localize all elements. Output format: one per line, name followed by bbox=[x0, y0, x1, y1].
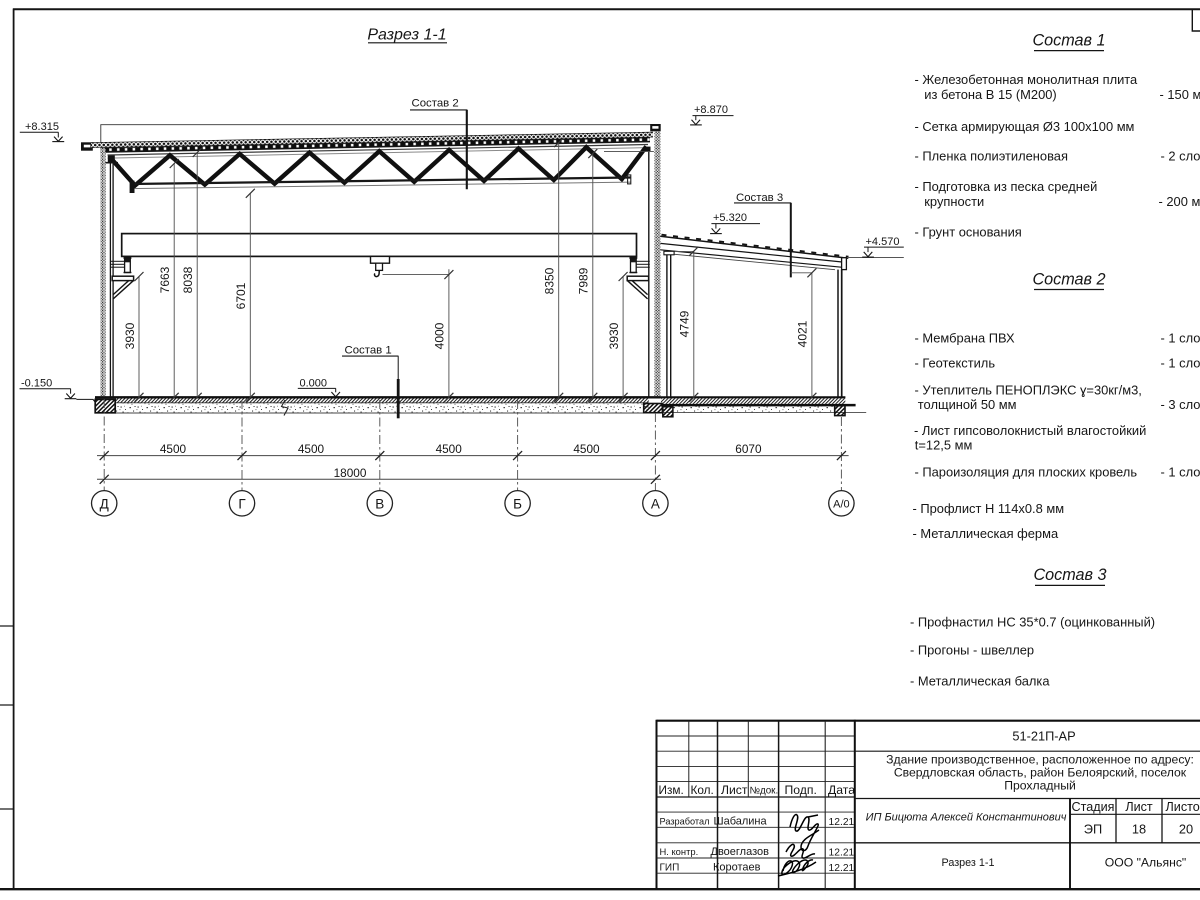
svg-text:Разрез 1-1: Разрез 1-1 bbox=[367, 27, 446, 44]
svg-text:- Профнастил НС 35*0.7 (оцинко: - Профнастил НС 35*0.7 (оцинкованный) bbox=[910, 614, 1155, 629]
svg-text:Листов: Листов bbox=[1166, 800, 1200, 814]
svg-text:ИП Бицюта Алексей Константинов: ИП Бицюта Алексей Константинович bbox=[866, 812, 1067, 824]
svg-text:Кол.: Кол. bbox=[691, 783, 714, 797]
svg-text:А/0: А/0 bbox=[833, 499, 850, 511]
svg-text:ЭП: ЭП bbox=[1084, 821, 1102, 836]
svg-text:3930: 3930 bbox=[123, 322, 137, 349]
svg-text:12.21: 12.21 bbox=[829, 817, 855, 828]
svg-text:8350: 8350 bbox=[543, 267, 557, 294]
svg-text:- 1 слой: - 1 слой bbox=[1161, 465, 1200, 480]
svg-text:4000: 4000 bbox=[433, 322, 447, 349]
svg-text:Лист: Лист bbox=[1125, 800, 1153, 814]
svg-text:А: А bbox=[651, 496, 660, 511]
svg-text:Изм.: Изм. bbox=[659, 783, 684, 797]
svg-text:Прохладный: Прохладный bbox=[1004, 778, 1076, 792]
svg-text:Дата: Дата bbox=[828, 783, 855, 797]
svg-text:Состав 3: Состав 3 bbox=[736, 192, 783, 204]
svg-text:- Сетка армирующая Ø3 100х100: - Сетка армирующая Ø3 100х100 мм bbox=[915, 119, 1135, 134]
svg-text:- 150 мм: - 150 мм bbox=[1160, 87, 1200, 102]
svg-text:t=12,5 мм: t=12,5 мм bbox=[915, 437, 973, 452]
svg-text:18000: 18000 bbox=[334, 466, 367, 480]
svg-text:4500: 4500 bbox=[160, 442, 187, 456]
svg-text:6070: 6070 bbox=[735, 442, 762, 456]
svg-text:- Утеплитель ПЕНОПЛЭКС ɣ=30кг/: - Утеплитель ПЕНОПЛЭКС ɣ=30кг/м3, bbox=[915, 382, 1142, 397]
svg-text:3930: 3930 bbox=[607, 322, 621, 349]
svg-text:- Пароизоляция для плоских кро: - Пароизоляция для плоских кровель bbox=[915, 465, 1138, 480]
svg-text:+8.315: +8.315 bbox=[25, 121, 59, 133]
svg-text:Состав 1: Состав 1 bbox=[345, 345, 392, 357]
svg-text:- Грунт основания: - Грунт основания bbox=[915, 224, 1022, 239]
svg-text:Разрез 1-1: Разрез 1-1 bbox=[941, 857, 994, 869]
svg-text:Свердловская область, район Бе: Свердловская область, район Белоярский, … bbox=[894, 765, 1187, 779]
svg-text:№док.: №док. bbox=[750, 786, 779, 797]
svg-text:- Металлическая ферма: - Металлическая ферма bbox=[913, 526, 1059, 541]
svg-text:Шабалина: Шабалина bbox=[714, 816, 768, 828]
svg-text:- Металлическая балка: - Металлическая балка bbox=[910, 673, 1050, 688]
svg-text:0.000: 0.000 bbox=[300, 378, 328, 390]
svg-text:-0.150: -0.150 bbox=[21, 377, 52, 389]
svg-text:4021: 4021 bbox=[796, 320, 810, 347]
svg-text:Г: Г bbox=[238, 496, 246, 511]
svg-text:18: 18 bbox=[1132, 821, 1146, 836]
svg-text:6701: 6701 bbox=[234, 282, 248, 309]
svg-text:ООО "Альянс": ООО "Альянс" bbox=[1105, 856, 1187, 870]
svg-text:- Прогоны - швеллер: - Прогоны - швеллер bbox=[910, 642, 1034, 657]
svg-text:- Железобетонная монолитная п: - Железобетонная монолитная плита bbox=[915, 72, 1139, 87]
svg-text:+4.570: +4.570 bbox=[866, 236, 900, 248]
svg-text:- Геотекстиль: - Геотекстиль bbox=[915, 356, 996, 371]
svg-text:Стадия: Стадия bbox=[1072, 800, 1115, 814]
svg-text:Коротаев: Коротаев bbox=[713, 861, 761, 873]
svg-text:12.21: 12.21 bbox=[829, 848, 855, 859]
svg-text:Б: Б bbox=[513, 496, 522, 511]
svg-text:- 3 слоя: - 3 слоя bbox=[1161, 397, 1200, 412]
svg-text:7989: 7989 bbox=[577, 267, 591, 294]
svg-text:Состав 2: Состав 2 bbox=[412, 98, 459, 110]
svg-text:- 200 мм: - 200 мм bbox=[1159, 194, 1200, 209]
svg-text:- 1 слой: - 1 слой bbox=[1161, 330, 1200, 345]
svg-text:Состав 1: Состав 1 bbox=[1032, 32, 1105, 50]
svg-text:4749: 4749 bbox=[678, 310, 692, 337]
svg-text:4500: 4500 bbox=[573, 442, 600, 456]
svg-text:толщиной 50 мм: толщиной 50 мм bbox=[918, 397, 1017, 412]
svg-text:- Пленка полиэтиленовая: - Пленка полиэтиленовая bbox=[915, 149, 1068, 164]
svg-text:из бетона В 15 (М200): из бетона В 15 (М200) bbox=[924, 87, 1056, 102]
svg-text:Состав 2: Состав 2 bbox=[1032, 270, 1105, 288]
svg-text:- Мембрана ПВХ: - Мембрана ПВХ bbox=[915, 330, 1016, 345]
svg-text:- Подготовка из песка средней: - Подготовка из песка средней bbox=[915, 179, 1098, 194]
svg-text:+8.870: +8.870 bbox=[694, 104, 728, 116]
svg-text:- Лист гипсоволокнистый влагос: - Лист гипсоволокнистый влагостойкий bbox=[914, 423, 1146, 438]
svg-text:Лист: Лист bbox=[721, 783, 748, 797]
svg-text:ГИП: ГИП bbox=[660, 863, 680, 874]
svg-text:- 1 слой: - 1 слой bbox=[1161, 356, 1200, 371]
svg-text:Подп.: Подп. bbox=[785, 783, 817, 797]
svg-text:8038: 8038 bbox=[181, 266, 195, 293]
svg-text:+5.320: +5.320 bbox=[713, 212, 747, 224]
svg-text:4500: 4500 bbox=[298, 442, 325, 456]
svg-text:51-21П-АР: 51-21П-АР bbox=[1012, 729, 1075, 744]
svg-text:Разработал: Разработал bbox=[660, 816, 710, 826]
svg-text:4500: 4500 bbox=[436, 442, 463, 456]
svg-text:- 2 слоя: - 2 слоя bbox=[1161, 149, 1200, 164]
svg-text:В: В bbox=[375, 496, 384, 511]
svg-text:Н. контр.: Н. контр. bbox=[660, 846, 699, 857]
svg-text:Д: Д bbox=[100, 496, 109, 511]
svg-text:крупности: крупности bbox=[924, 194, 984, 209]
svg-text:Состав 3: Состав 3 bbox=[1033, 566, 1106, 584]
svg-text:20: 20 bbox=[1179, 821, 1193, 836]
svg-text:12.21: 12.21 bbox=[829, 863, 855, 874]
svg-text:Двоеглазов: Двоеглазов bbox=[711, 846, 770, 858]
svg-text:7663: 7663 bbox=[158, 266, 172, 293]
svg-text:- Профлист Н 114х0.8 мм: - Профлист Н 114х0.8 мм bbox=[913, 501, 1065, 516]
